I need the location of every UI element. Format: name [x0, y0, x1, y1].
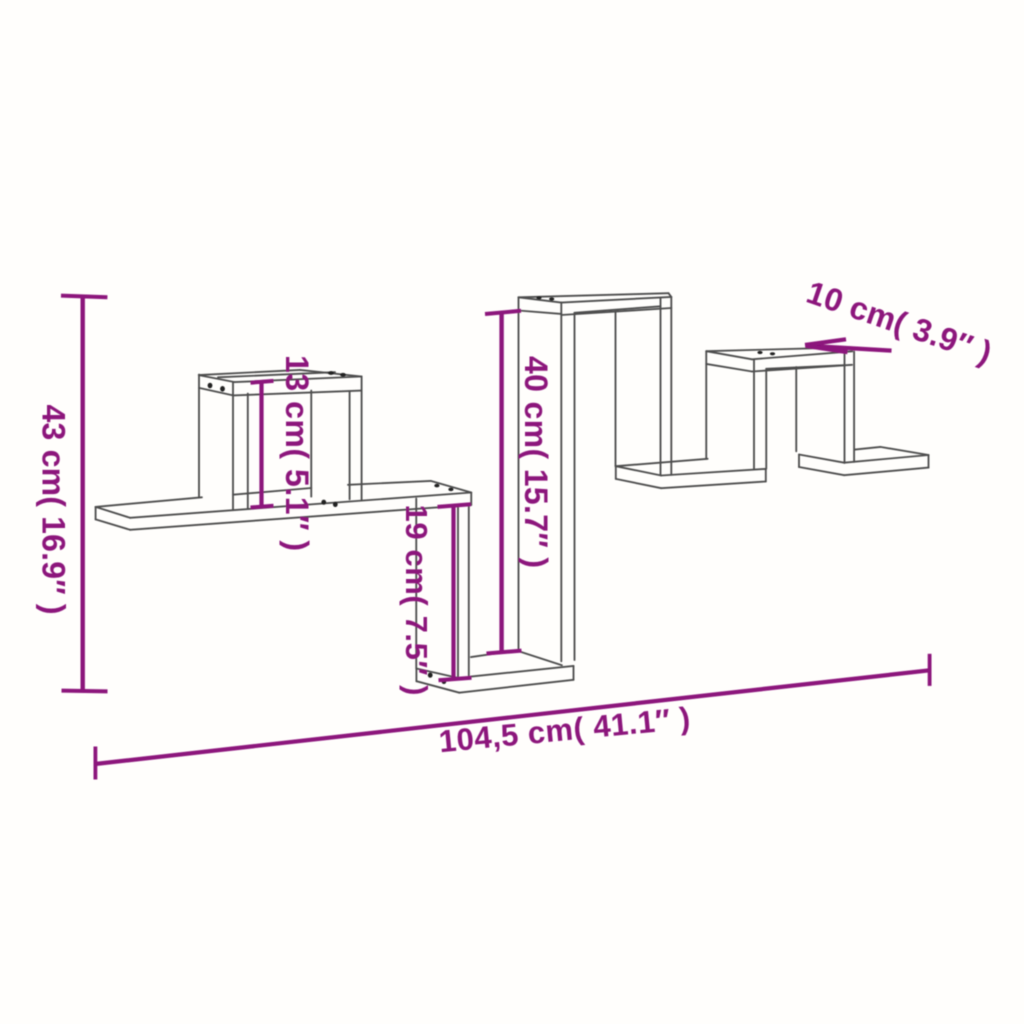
svg-text:40 cm( 15.7″ ): 40 cm( 15.7″ ) — [518, 356, 554, 568]
svg-text:43 cm( 16.9″ ): 43 cm( 16.9″ ) — [36, 405, 72, 615]
svg-text:13 cm( 5.1″ ): 13 cm( 5.1″ ) — [279, 355, 315, 551]
svg-text:19 cm( 7.5″ ): 19 cm( 7.5″ ) — [399, 505, 434, 696]
